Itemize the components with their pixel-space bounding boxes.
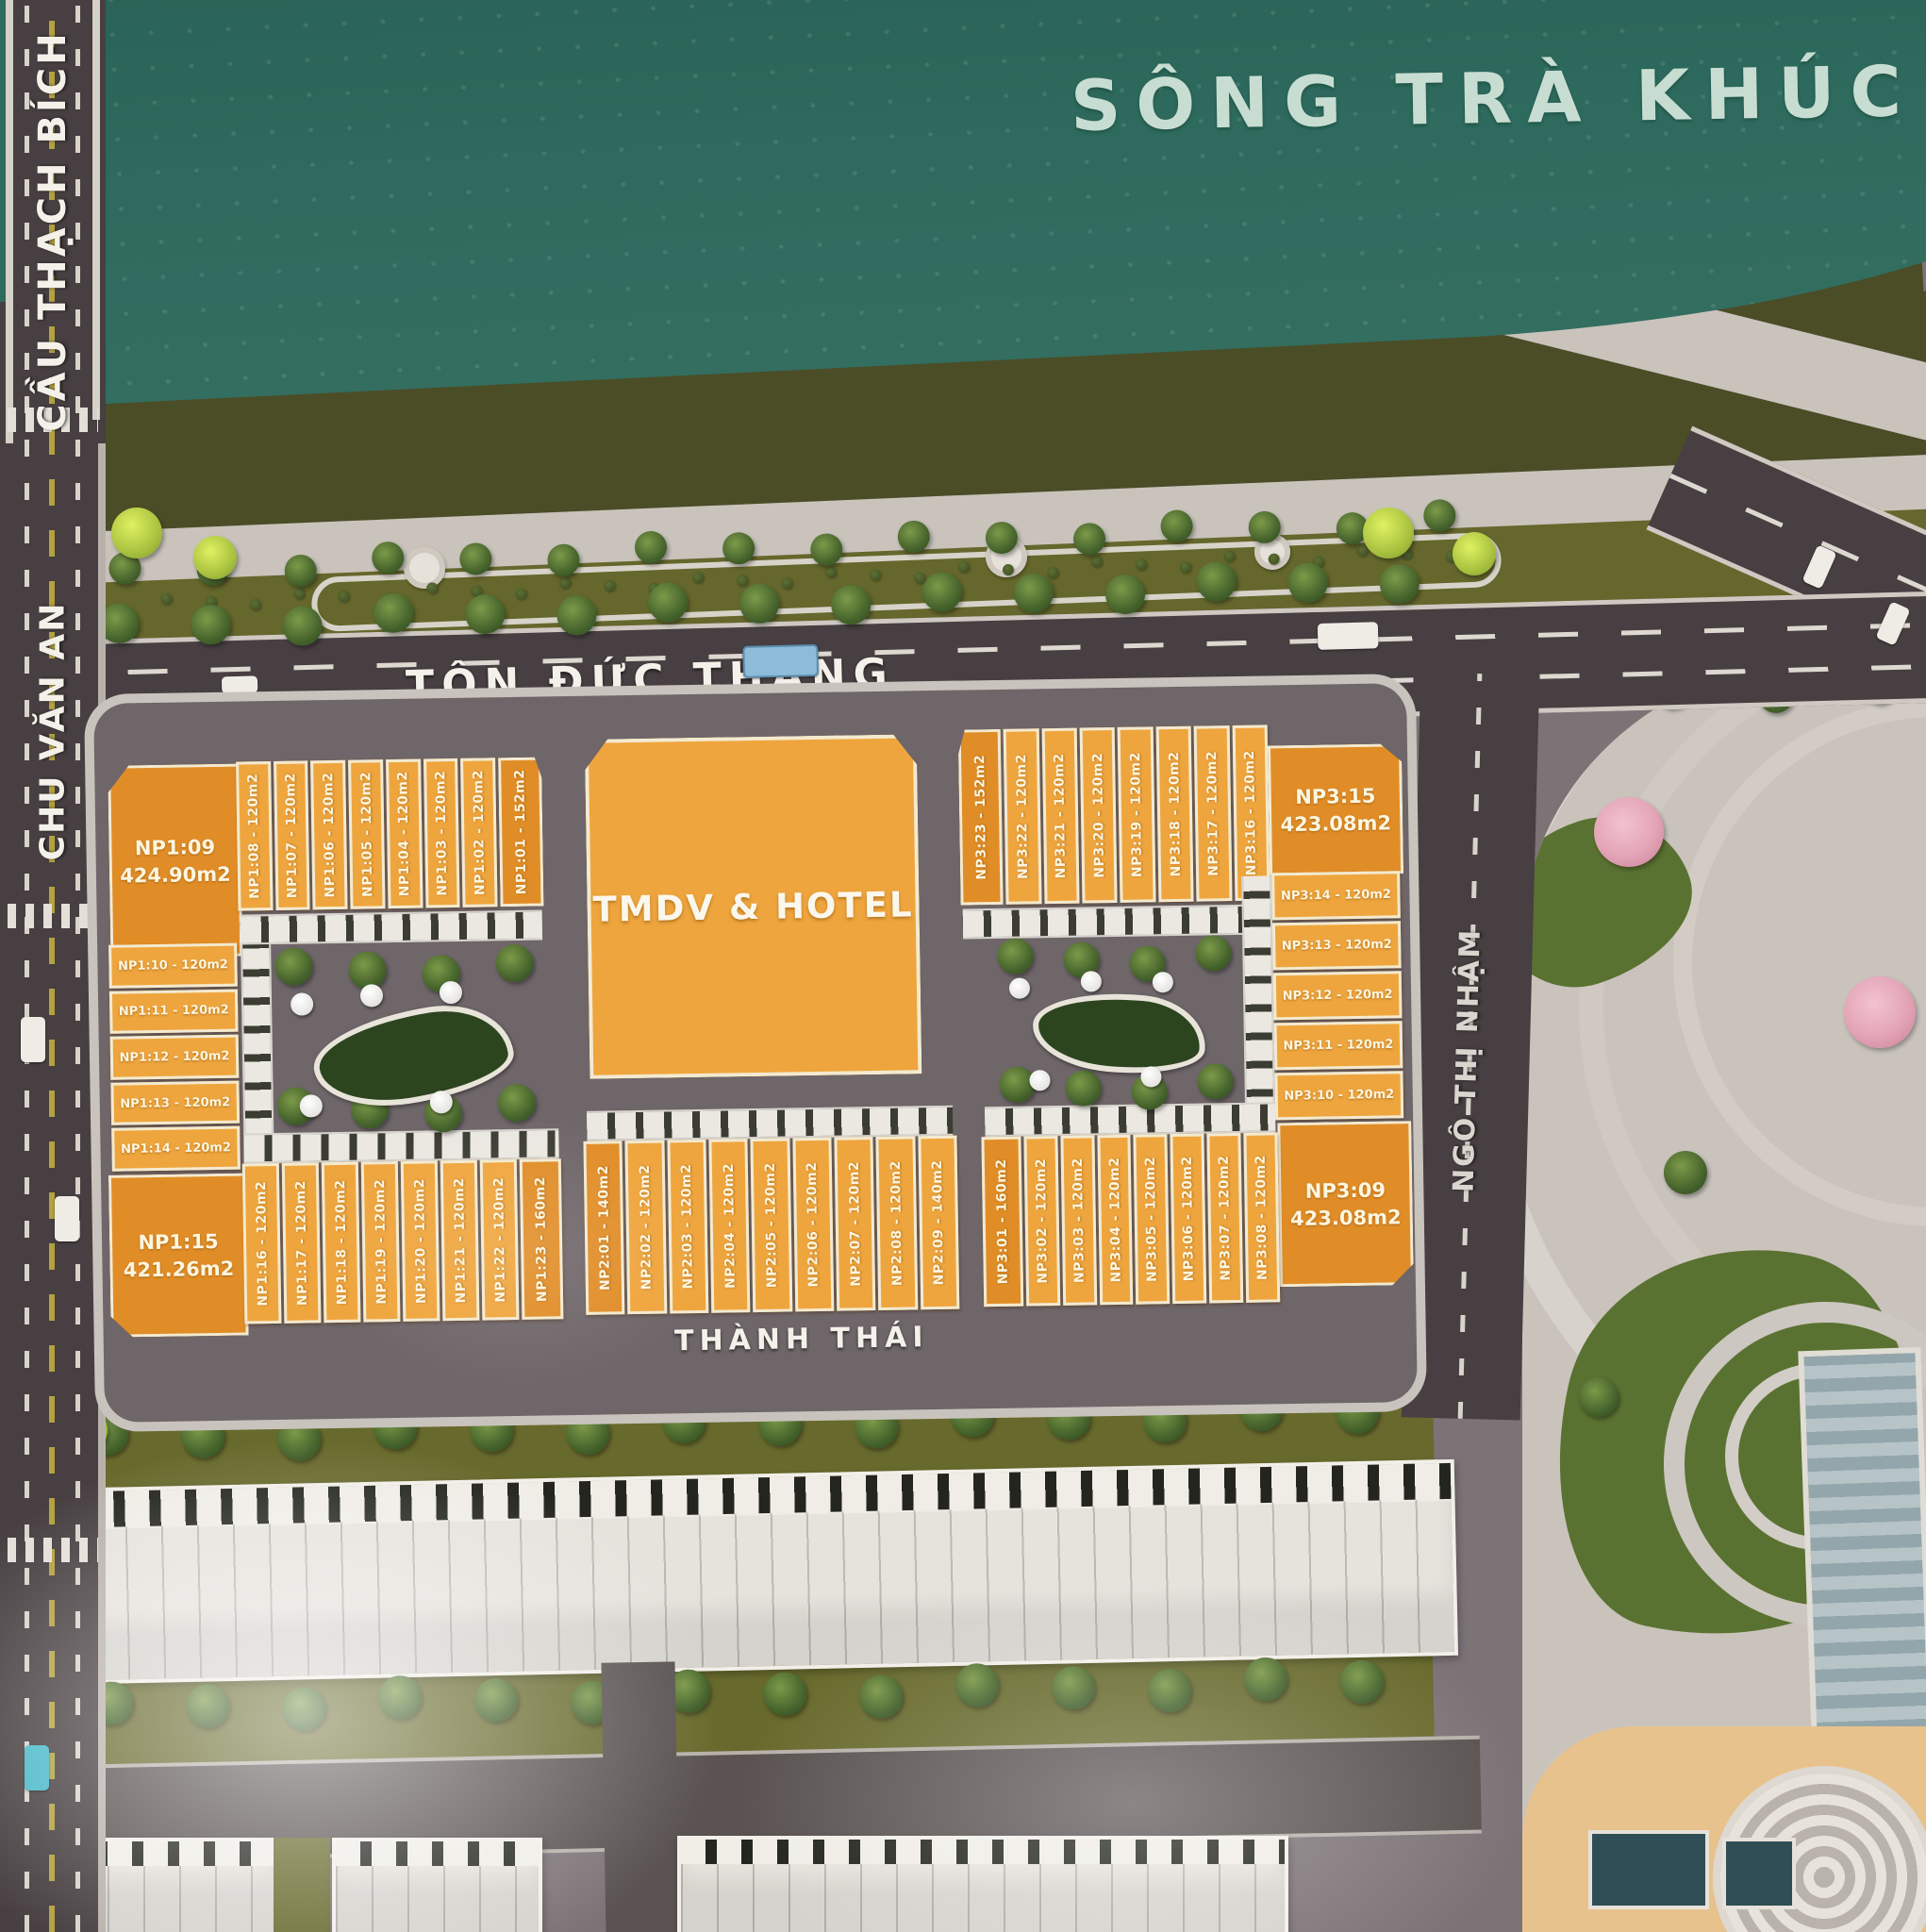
lot-area: 424.90m2 bbox=[120, 862, 231, 887]
stone-dome bbox=[1081, 971, 1102, 991]
tree-icon bbox=[186, 1684, 230, 1728]
street-label-bridge: CẦU THẠCH BÍCH bbox=[31, 30, 75, 431]
tree-icon bbox=[985, 521, 1018, 554]
lot-np1-08: NP1:08 - 120m2 bbox=[236, 761, 273, 911]
lot-np3-02: NP3:02 - 120m2 bbox=[1023, 1136, 1060, 1307]
swimming-pool bbox=[1722, 1838, 1796, 1909]
tree-icon bbox=[1379, 563, 1420, 605]
lot-id: NP1:09 bbox=[135, 835, 216, 858]
yellow-tree-icon bbox=[111, 508, 162, 558]
lot-np1-10: NP1:10 - 120m2 bbox=[108, 943, 238, 989]
tree-icon bbox=[556, 595, 598, 637]
site-plan-photo: SÔNG TRÀ KHÚC TÔN ĐỨC THẮNG CẦU THẠCH bbox=[0, 0, 1926, 1932]
lot-np1-02: NP1:02 - 120m2 bbox=[460, 758, 497, 908]
lot-np1-23: NP1:23 - 160m2 bbox=[520, 1158, 564, 1320]
tree-icon bbox=[634, 530, 667, 563]
lot-id: NP3:09 bbox=[1305, 1178, 1386, 1202]
lot-np3-13: NP3:13 - 120m2 bbox=[1272, 921, 1402, 970]
lot-np1-15: NP1:15 421.26m2 bbox=[108, 1173, 249, 1337]
lot-np2-08: NP2:08 - 120m2 bbox=[876, 1136, 918, 1310]
tree-icon bbox=[810, 533, 843, 566]
townhouse-row-1 bbox=[85, 1459, 1458, 1684]
bus bbox=[742, 644, 819, 678]
lot-np1-07: NP1:07 - 120m2 bbox=[274, 760, 310, 910]
tree-icon bbox=[1248, 510, 1281, 543]
crosswalk bbox=[8, 1538, 98, 1562]
np1-row-bottom: NP1:16 - 120m2 NP1:17 - 120m2 NP1:18 - 1… bbox=[242, 1158, 564, 1324]
lot-id: NP1:15 bbox=[138, 1229, 219, 1253]
street-connector bbox=[601, 1661, 679, 1932]
tree-icon bbox=[1148, 1669, 1192, 1713]
lot-id: NP3:15 bbox=[1295, 784, 1376, 808]
tree-icon bbox=[739, 583, 780, 625]
tree-icon bbox=[647, 582, 689, 624]
tree-icon bbox=[1579, 1377, 1619, 1417]
tree-icon bbox=[830, 584, 872, 625]
road-chu-van-an: CẦU THẠCH BÍCH CHU VĂN AN bbox=[0, 0, 106, 1932]
lot-np1-18: NP1:18 - 120m2 bbox=[322, 1162, 361, 1324]
tree-icon bbox=[1243, 1657, 1287, 1701]
east-park bbox=[1522, 660, 1926, 1932]
west-label-zone: CHU VĂN AN bbox=[0, 557, 106, 906]
lot-np1-16: NP1:16 - 120m2 bbox=[242, 1163, 282, 1324]
tree-icon bbox=[955, 1663, 999, 1707]
roof-units bbox=[336, 1841, 539, 1866]
np2-row: NP2:01 - 140m2 NP2:02 - 120m2 NP2:03 - 1… bbox=[583, 1136, 959, 1315]
car bbox=[55, 1196, 79, 1241]
lot-np2-06: NP2:06 - 120m2 bbox=[792, 1138, 834, 1312]
tree-icon bbox=[282, 1687, 326, 1731]
lot-np2-05: NP2:05 - 120m2 bbox=[751, 1138, 792, 1312]
lot-np1-04: NP1:04 - 120m2 bbox=[386, 759, 423, 909]
house-row bbox=[241, 910, 542, 945]
lot-np1-20: NP1:20 - 120m2 bbox=[401, 1160, 440, 1322]
tree-icon bbox=[459, 542, 492, 575]
truck bbox=[1318, 622, 1379, 650]
tree-icon bbox=[474, 1678, 519, 1723]
lot-np2-03: NP2:03 - 120m2 bbox=[667, 1140, 708, 1314]
stone-dome bbox=[360, 984, 383, 1007]
tree-icon bbox=[373, 592, 414, 634]
crosswalk bbox=[8, 904, 98, 928]
tree-icon bbox=[497, 1084, 536, 1123]
yellow-tree-icon bbox=[1363, 508, 1414, 558]
lot-np1-17: NP1:17 - 120m2 bbox=[282, 1162, 322, 1324]
townhouse-row-2 bbox=[677, 1836, 1288, 1932]
tree-icon bbox=[1423, 499, 1456, 532]
lot-np1-13: NP1:13 - 120m2 bbox=[110, 1080, 240, 1125]
lot-np2-01: NP2:01 - 140m2 bbox=[583, 1141, 624, 1315]
lot-np1-21: NP1:21 - 120m2 bbox=[440, 1160, 480, 1322]
swimming-pool bbox=[1588, 1830, 1709, 1909]
lot-np1-09: NP1:09 424.90m2 bbox=[108, 764, 242, 958]
tree-icon bbox=[277, 1417, 322, 1461]
tree-icon bbox=[1339, 1659, 1384, 1704]
lot-np3-05: NP3:05 - 120m2 bbox=[1134, 1134, 1171, 1305]
yellow-tree-icon bbox=[193, 536, 237, 579]
lot-np1-12: NP1:12 - 120m2 bbox=[110, 1035, 240, 1080]
lot-area: 423.08m2 bbox=[1280, 811, 1391, 836]
lot-np3-22: NP3:22 - 120m2 bbox=[1004, 728, 1041, 905]
lot-np2-04: NP2:04 - 120m2 bbox=[708, 1139, 750, 1313]
tree-icon bbox=[284, 554, 317, 587]
np3-col-right: NP3:14 - 120m2 NP3:13 - 120m2 NP3:12 - 1… bbox=[1271, 871, 1403, 1120]
street-label-west: CHU VĂN AN bbox=[34, 602, 73, 861]
lot-np2-07: NP2:07 - 120m2 bbox=[834, 1137, 875, 1311]
tree-row-courtyard bbox=[274, 944, 540, 986]
lot-np3-15: NP3:15 423.08m2 bbox=[1268, 743, 1403, 875]
lot-np2-02: NP2:02 - 120m2 bbox=[625, 1141, 667, 1315]
lot-np3-18: NP3:18 - 120m2 bbox=[1155, 726, 1193, 903]
lot-np3-20: NP3:20 - 120m2 bbox=[1080, 727, 1118, 904]
tree-icon bbox=[1013, 573, 1054, 614]
tree-icon bbox=[1197, 1063, 1234, 1100]
tree-icon bbox=[282, 606, 324, 647]
lot-np3-10: NP3:10 - 120m2 bbox=[1274, 1071, 1403, 1120]
tree-icon bbox=[495, 944, 534, 983]
tree-icon bbox=[1160, 509, 1193, 542]
hotel-block: TMDV & HOTEL bbox=[585, 734, 922, 1078]
road-ngo-thi-nham: NGÔ THỊ NHẬM bbox=[1402, 672, 1540, 1420]
lot-np3-12: NP3:12 - 120m2 bbox=[1273, 971, 1403, 1020]
tree-icon bbox=[855, 1405, 899, 1449]
tree-icon bbox=[191, 604, 232, 645]
street-label-south: THÀNH THÁI bbox=[651, 1321, 954, 1358]
lot-np3-06: NP3:06 - 120m2 bbox=[1171, 1134, 1207, 1305]
tree-icon bbox=[348, 951, 387, 990]
car bbox=[222, 675, 257, 693]
tree-icon bbox=[274, 947, 313, 986]
lot-np3-09: NP3:09 423.08m2 bbox=[1277, 1121, 1414, 1287]
house-row bbox=[1241, 875, 1275, 1117]
stone-dome bbox=[1153, 972, 1173, 992]
tree-row-courtyard bbox=[997, 935, 1239, 974]
lot-np1-19: NP1:19 - 120m2 bbox=[361, 1161, 401, 1323]
car bbox=[21, 1017, 45, 1062]
stone-dome bbox=[291, 992, 313, 1015]
tree-icon bbox=[465, 593, 506, 635]
np1-row-top: NP1:08 - 120m2 NP1:07 - 120m2 NP1:06 - 1… bbox=[236, 758, 543, 911]
tree-icon bbox=[372, 541, 405, 575]
lot-np3-17: NP3:17 - 120m2 bbox=[1194, 725, 1232, 902]
glass-roof-building bbox=[1798, 1347, 1926, 1768]
tree-icon bbox=[547, 543, 580, 576]
np3-row-bottom: NP3:01 - 160m2 NP3:02 - 120m2 NP3:03 - 1… bbox=[981, 1132, 1280, 1307]
np3-row-top: NP3:23 - 152m2 NP3:22 - 120m2 NP3:21 - 1… bbox=[958, 724, 1270, 905]
tree-icon bbox=[763, 1672, 807, 1716]
tree-icon bbox=[1664, 1151, 1707, 1194]
stone-dome bbox=[1009, 977, 1030, 998]
lot-np3-16: NP3:16 - 120m2 bbox=[1232, 724, 1270, 901]
tree-icon bbox=[1072, 523, 1105, 556]
tree-icon bbox=[859, 1674, 904, 1719]
house-row bbox=[985, 1102, 1275, 1137]
development-superblock: NP1:09 424.90m2 NP1:08 - 120m2 NP1:07 - … bbox=[93, 683, 1418, 1423]
tree-icon bbox=[1065, 1070, 1102, 1107]
pink-tree-icon bbox=[1594, 797, 1664, 867]
np1-col-left: NP1:10 - 120m2 NP1:11 - 120m2 NP1:12 - 1… bbox=[108, 943, 241, 1172]
lot-np1-11: NP1:11 - 120m2 bbox=[109, 989, 239, 1034]
car bbox=[25, 1745, 49, 1790]
apartment-tower bbox=[332, 1838, 542, 1932]
tree-icon bbox=[897, 520, 930, 553]
lot-np3-23: NP3:23 - 152m2 bbox=[958, 729, 1004, 906]
roof-units bbox=[681, 1840, 1285, 1864]
lawn-gap bbox=[274, 1838, 330, 1932]
street-label-east: NGÔ THỊ NHẬM bbox=[1447, 927, 1486, 1192]
hotel-label: TMDV & HOTEL bbox=[592, 884, 914, 929]
lot-np1-22: NP1:22 - 120m2 bbox=[480, 1159, 520, 1321]
lot-np3-11: NP3:11 - 120m2 bbox=[1274, 1021, 1403, 1070]
house-row bbox=[243, 1128, 558, 1163]
lot-np3-08: NP3:08 - 120m2 bbox=[1244, 1132, 1281, 1303]
lot-area: 423.08m2 bbox=[1290, 1206, 1402, 1230]
tree-icon bbox=[921, 572, 963, 613]
tree-icon bbox=[1052, 1666, 1096, 1710]
tree-icon bbox=[722, 532, 755, 565]
courtyard-np3 bbox=[993, 933, 1241, 1103]
tree-icon bbox=[1195, 935, 1232, 972]
lot-np3-01: NP3:01 - 160m2 bbox=[981, 1137, 1023, 1307]
lot-np3-21: NP3:21 - 120m2 bbox=[1041, 728, 1079, 905]
lot-np1-03: NP1:03 - 120m2 bbox=[423, 758, 460, 908]
tree-icon bbox=[566, 1410, 610, 1455]
tree-icon bbox=[997, 938, 1034, 974]
lot-np1-01: NP1:01 - 152m2 bbox=[498, 758, 543, 908]
tree-icon bbox=[1287, 562, 1329, 604]
river-title: SÔNG TRÀ KHÚC bbox=[1070, 51, 1917, 147]
lot-np1-14: NP1:14 - 120m2 bbox=[111, 1126, 241, 1172]
bridge-label-zone: CẦU THẠCH BÍCH bbox=[0, 28, 106, 434]
courtyard-np1 bbox=[269, 941, 545, 1130]
lot-np3-03: NP3:03 - 120m2 bbox=[1060, 1135, 1097, 1306]
lot-np1-06: NP1:06 - 120m2 bbox=[311, 760, 348, 910]
lot-np3-19: NP3:19 - 120m2 bbox=[1118, 726, 1155, 903]
lot-np3-14: NP3:14 - 120m2 bbox=[1271, 871, 1401, 920]
tree-icon bbox=[1196, 561, 1237, 603]
pink-tree-icon bbox=[1844, 976, 1916, 1048]
tree-icon bbox=[378, 1675, 423, 1720]
east-label-zone: NGÔ THỊ NHẬM bbox=[1434, 842, 1502, 1277]
lot-np1-05: NP1:05 - 120m2 bbox=[348, 759, 385, 909]
stone-dome bbox=[440, 981, 462, 1004]
lot-np3-07: NP3:07 - 120m2 bbox=[1207, 1133, 1244, 1304]
lot-np3-04: NP3:04 - 120m2 bbox=[1097, 1135, 1134, 1306]
lot-np2-09: NP2:09 - 140m2 bbox=[918, 1136, 959, 1310]
lot-area: 421.26m2 bbox=[124, 1257, 235, 1281]
tree-icon bbox=[1104, 574, 1146, 615]
